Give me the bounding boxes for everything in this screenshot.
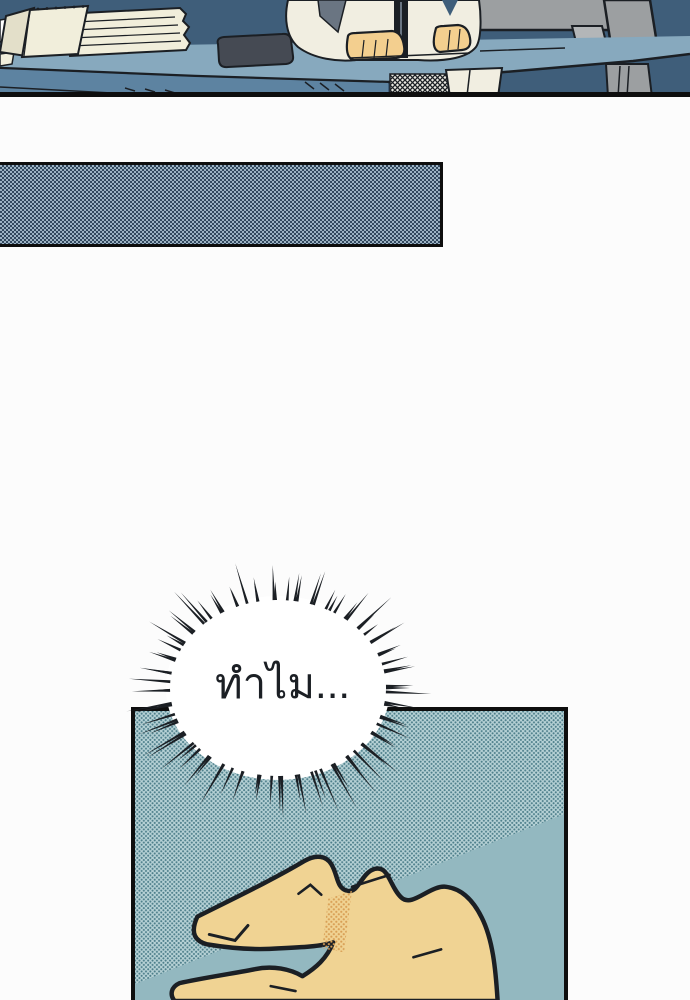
- glasses-case: [218, 34, 294, 67]
- burst-spike: [273, 565, 276, 600]
- panel-desk-scene: [0, 0, 690, 97]
- burst-spike: [134, 703, 172, 712]
- burst-spike: [297, 774, 306, 814]
- burst-spike: [278, 776, 281, 813]
- burst-spike: [170, 616, 194, 635]
- burst-spike: [361, 742, 398, 773]
- burst-spike: [312, 571, 325, 605]
- burst-spike: [184, 755, 210, 786]
- burst-spike: [376, 722, 410, 738]
- burst-spike: [382, 657, 408, 666]
- burst-spike: [386, 691, 432, 694]
- burst-spike: [345, 755, 376, 793]
- burst-spike: [140, 668, 172, 675]
- burst-spike: [129, 679, 170, 683]
- caption-box: [0, 162, 443, 247]
- panel-border: [0, 92, 690, 97]
- burst-spike: [333, 594, 346, 614]
- burst-spike: [345, 593, 368, 621]
- burst-spike: [210, 590, 224, 613]
- person-at-desk: [286, 0, 480, 61]
- burst-spike: [343, 602, 357, 619]
- burst-spike: [353, 750, 384, 781]
- burst-spike: [132, 689, 170, 692]
- burst-spike: [386, 685, 413, 688]
- burst-spike: [370, 623, 405, 644]
- burst-spike: [149, 622, 186, 645]
- speech-bubble-text: ทำไม...: [190, 650, 375, 717]
- burst-spike: [174, 592, 205, 625]
- burst-spike: [370, 627, 396, 644]
- burst-spike: [371, 731, 395, 745]
- burst-spike: [195, 756, 212, 777]
- burst-spike: [197, 600, 212, 619]
- burst-spike: [210, 595, 222, 614]
- burst-spike: [150, 720, 179, 733]
- burst-spike: [143, 731, 185, 756]
- burst-spike: [200, 763, 225, 805]
- burst-spike: [270, 776, 273, 805]
- burst-spike: [139, 718, 177, 734]
- burst-spike: [169, 610, 196, 633]
- burst-spike: [357, 614, 374, 630]
- burst-spike: [235, 563, 248, 604]
- right-hand: [434, 25, 471, 52]
- burst-spike: [221, 767, 234, 794]
- burst-spike: [377, 645, 401, 656]
- burst-spike: [363, 624, 378, 636]
- comic-page: ทำไม...: [0, 0, 690, 1000]
- burst-spike: [333, 763, 350, 790]
